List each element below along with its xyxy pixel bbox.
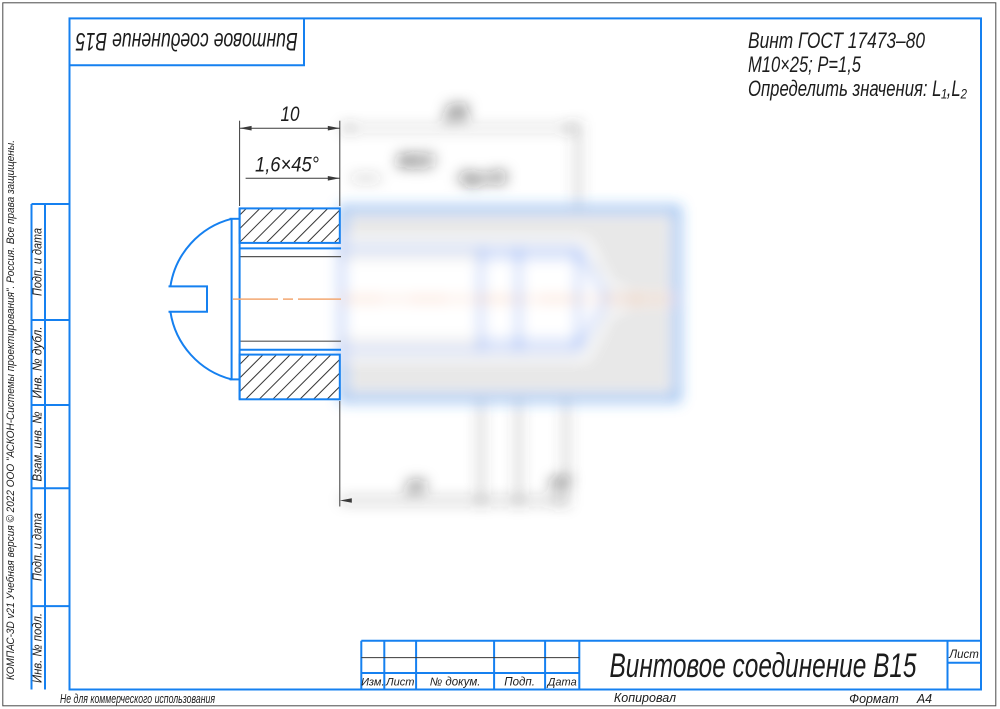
svg-text:Определить значения: L₁,L₂: Определить значения: L₁,L₂ [748, 76, 967, 101]
svg-text:Винтовое соединение В15: Винтовое соединение В15 [76, 27, 298, 55]
svg-text:-6g×25: -6g×25 [456, 170, 506, 187]
svg-text:Винтовое соединение В15: Винтовое соединение В15 [610, 647, 917, 685]
svg-text:Дата: Дата [546, 677, 577, 689]
svg-text:М10×25; Р=1,5: М10×25; Р=1,5 [748, 52, 862, 77]
svg-text:А4: А4 [916, 692, 932, 706]
svg-text:Лист: Лист [948, 649, 979, 661]
svg-text:Подп. и дата: Подп. и дата [30, 513, 45, 581]
svg-text:Винт ГОСТ 17473–80: Винт ГОСТ 17473–80 [748, 28, 926, 53]
svg-text:КОМПАС-3D v21 Учебная версия ©: КОМПАС-3D v21 Учебная версия © 2022 ООО … [5, 140, 17, 680]
svg-text:45°: 45° [549, 475, 572, 492]
svg-text:Инв. № дубл.: Инв. № дубл. [30, 327, 45, 399]
svg-text:Взам. инв. №: Взам. инв. № [30, 412, 45, 482]
svg-text:Подп. и дата: Подп. и дата [30, 228, 45, 296]
svg-text:1,6×45°: 1,6×45° [255, 153, 319, 177]
svg-text:20: 20 [405, 477, 425, 496]
svg-text:Не для коммерческого использов: Не для коммерческого использования [60, 692, 215, 706]
svg-text:М10: М10 [398, 151, 433, 171]
svg-text:25: 25 [443, 102, 468, 125]
svg-text:№ докум.: № докум. [430, 677, 481, 689]
svg-text:Формат: Формат [849, 692, 899, 706]
svg-text:Лист: Лист [385, 677, 414, 689]
svg-text:Инв. № подл.: Инв. № подл. [30, 613, 45, 683]
svg-text:Копировал: Копировал [614, 691, 676, 705]
svg-text:Подп.: Подп. [504, 677, 535, 689]
svg-text:10: 10 [281, 102, 300, 126]
svg-text:Изм.: Изм. [361, 677, 384, 689]
